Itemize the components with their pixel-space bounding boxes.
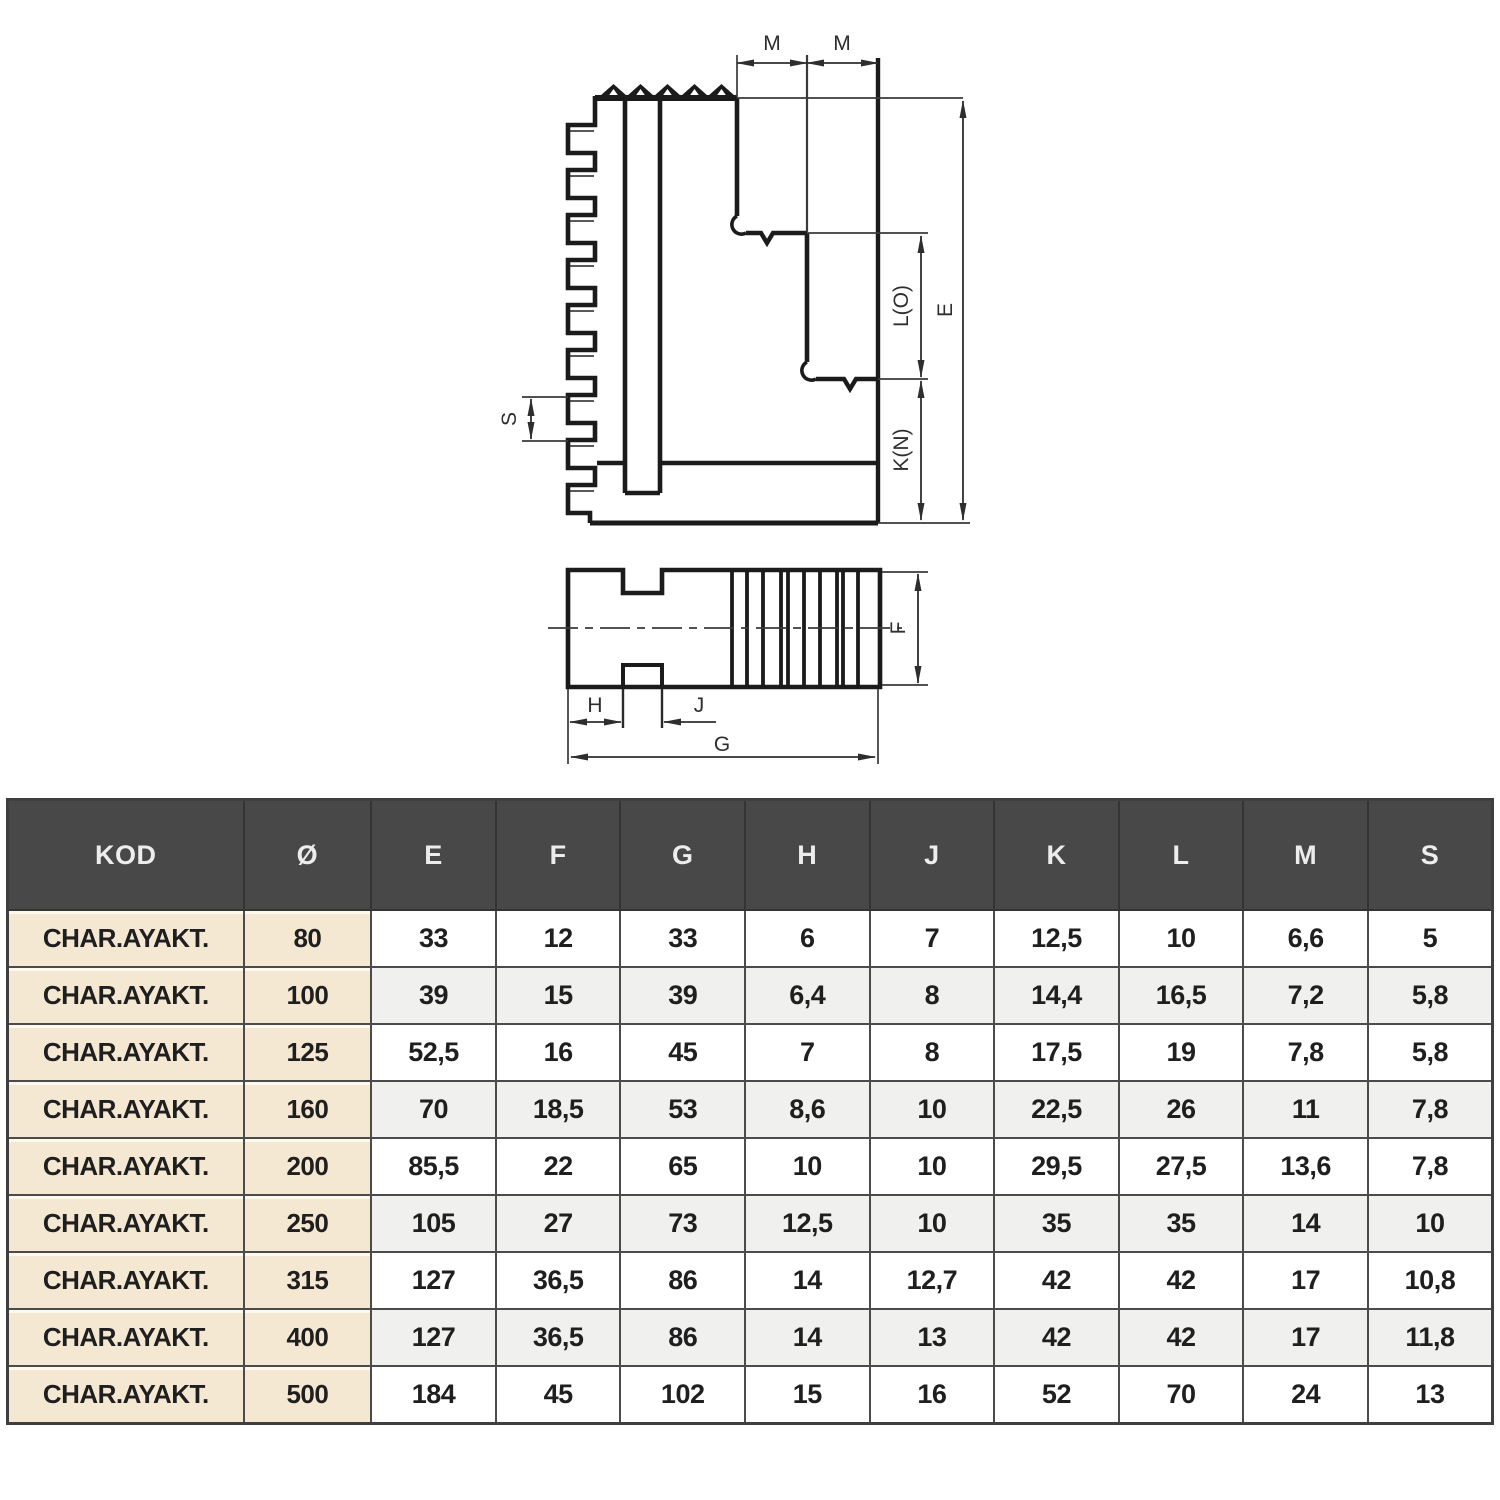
value-cell: 7,8 <box>1368 1081 1493 1138</box>
value-cell: 18,5 <box>496 1081 621 1138</box>
value-cell: 27,5 <box>1119 1138 1244 1195</box>
table-row: CHAR.AYAKT.1607018,5538,61022,526117,8 <box>8 1081 1493 1138</box>
value-cell: 10,8 <box>1368 1252 1493 1309</box>
value-cell: 10 <box>1119 910 1244 967</box>
value-cell: 13,6 <box>1243 1138 1368 1195</box>
kod-cell: CHAR.AYAKT. <box>8 1309 244 1366</box>
value-cell: 73 <box>620 1195 745 1252</box>
table-row: CHAR.AYAKT.40012736,586141342421711,8 <box>8 1309 1493 1366</box>
value-cell: 8 <box>870 1024 995 1081</box>
value-cell: 36,5 <box>496 1309 621 1366</box>
kod-cell: CHAR.AYAKT. <box>8 910 244 967</box>
header-row: KOD Ø E F G H J K L M S <box>8 800 1493 911</box>
diameter-cell: 160 <box>244 1081 372 1138</box>
value-cell: 127 <box>371 1309 496 1366</box>
value-cell: 15 <box>496 967 621 1024</box>
jaw-drawing-svg: M M E L(O) K(N) S H J G F <box>0 0 1500 795</box>
plan-slot-extensions <box>623 689 662 728</box>
value-cell: 35 <box>994 1195 1119 1252</box>
value-cell: 127 <box>371 1252 496 1309</box>
value-cell: 184 <box>371 1366 496 1424</box>
col-header-f: F <box>496 800 621 911</box>
value-cell: 7 <box>745 1024 870 1081</box>
value-cell: 16 <box>870 1366 995 1424</box>
value-cell: 11,8 <box>1368 1309 1493 1366</box>
value-cell: 39 <box>371 967 496 1024</box>
value-cell: 6,4 <box>745 967 870 1024</box>
value-cell: 22 <box>496 1138 621 1195</box>
value-cell: 105 <box>371 1195 496 1252</box>
value-cell: 53 <box>620 1081 745 1138</box>
col-header-m: M <box>1243 800 1368 911</box>
value-cell: 11 <box>1243 1081 1368 1138</box>
table-row: CHAR.AYAKT.803312336712,5106,65 <box>8 910 1493 967</box>
diameter-cell: 100 <box>244 967 372 1024</box>
value-cell: 26 <box>1119 1081 1244 1138</box>
value-cell: 86 <box>620 1252 745 1309</box>
value-cell: 10 <box>870 1081 995 1138</box>
value-cell: 33 <box>620 910 745 967</box>
col-header-s: S <box>1368 800 1493 911</box>
table-row: CHAR.AYAKT.20085,52265101029,527,513,67,… <box>8 1138 1493 1195</box>
kod-cell: CHAR.AYAKT. <box>8 1081 244 1138</box>
value-cell: 24 <box>1243 1366 1368 1424</box>
value-cell: 7 <box>870 910 995 967</box>
value-cell: 70 <box>371 1081 496 1138</box>
value-cell: 42 <box>994 1309 1119 1366</box>
col-header-kod: KOD <box>8 800 244 911</box>
value-cell: 17 <box>1243 1309 1368 1366</box>
guide-slot <box>625 98 660 493</box>
value-cell: 27 <box>496 1195 621 1252</box>
value-cell: 6,6 <box>1243 910 1368 967</box>
kod-cell: CHAR.AYAKT. <box>8 1024 244 1081</box>
value-cell: 15 <box>745 1366 870 1424</box>
label-lo: L(O) <box>890 285 913 327</box>
label-m-left: M <box>763 32 781 55</box>
value-cell: 14,4 <box>994 967 1119 1024</box>
kod-cell: CHAR.AYAKT. <box>8 967 244 1024</box>
diameter-cell: 200 <box>244 1138 372 1195</box>
value-cell: 13 <box>1368 1366 1493 1424</box>
value-cell: 7,2 <box>1243 967 1368 1024</box>
value-cell: 5,8 <box>1368 1024 1493 1081</box>
label-kn: K(N) <box>890 428 913 471</box>
kod-cell: CHAR.AYAKT. <box>8 1252 244 1309</box>
value-cell: 6 <box>745 910 870 967</box>
table-row: CHAR.AYAKT.31512736,5861412,742421710,8 <box>8 1252 1493 1309</box>
value-cell: 22,5 <box>994 1081 1119 1138</box>
label-g: G <box>714 733 730 756</box>
diameter-cell: 400 <box>244 1309 372 1366</box>
value-cell: 86 <box>620 1309 745 1366</box>
bore2-relief-hook <box>802 362 816 380</box>
plan-bottom-slot <box>623 665 662 687</box>
label-e: E <box>934 303 957 317</box>
value-cell: 8,6 <box>745 1081 870 1138</box>
value-cell: 10 <box>870 1195 995 1252</box>
value-cell: 65 <box>620 1138 745 1195</box>
value-cell: 14 <box>1243 1195 1368 1252</box>
table-row: CHAR.AYAKT.12552,516457817,5197,85,8 <box>8 1024 1493 1081</box>
value-cell: 12 <box>496 910 621 967</box>
table-row: CHAR.AYAKT.1003915396,4814,416,57,25,8 <box>8 967 1493 1024</box>
table-header: KOD Ø E F G H J K L M S <box>8 800 1493 911</box>
value-cell: 29,5 <box>994 1138 1119 1195</box>
diameter-cell: 125 <box>244 1024 372 1081</box>
col-header-diameter: Ø <box>244 800 372 911</box>
value-cell: 14 <box>745 1309 870 1366</box>
drawing-side-view: M M E L(O) K(N) S <box>498 32 970 523</box>
value-cell: 33 <box>371 910 496 967</box>
table-row: CHAR.AYAKT.250105277312,51035351410 <box>8 1195 1493 1252</box>
value-cell: 12,7 <box>870 1252 995 1309</box>
top-serration-notches <box>609 89 727 96</box>
value-cell: 16,5 <box>1119 967 1244 1024</box>
kod-cell: CHAR.AYAKT. <box>8 1138 244 1195</box>
label-s: S <box>498 412 521 426</box>
value-cell: 17 <box>1243 1252 1368 1309</box>
col-header-g: G <box>620 800 745 911</box>
value-cell: 5,8 <box>1368 967 1493 1024</box>
value-cell: 10 <box>870 1138 995 1195</box>
value-cell: 7,8 <box>1368 1138 1493 1195</box>
value-cell: 13 <box>870 1309 995 1366</box>
value-cell: 42 <box>1119 1309 1244 1366</box>
value-cell: 35 <box>1119 1195 1244 1252</box>
bore1-step-surface <box>746 233 807 243</box>
value-cell: 12,5 <box>745 1195 870 1252</box>
value-cell: 16 <box>496 1024 621 1081</box>
bore2-step-surface <box>816 379 878 389</box>
technical-drawing: M M E L(O) K(N) S H J G F <box>0 0 1500 795</box>
value-cell: 42 <box>1119 1252 1244 1309</box>
spec-table: KOD Ø E F G H J K L M S CHAR.AYAKT.80331… <box>6 798 1494 1425</box>
value-cell: 7,8 <box>1243 1024 1368 1081</box>
tooth-face-lines <box>569 131 594 491</box>
value-cell: 10 <box>745 1138 870 1195</box>
diameter-cell: 80 <box>244 910 372 967</box>
value-cell: 19 <box>1119 1024 1244 1081</box>
value-cell: 52 <box>994 1366 1119 1424</box>
table-body: CHAR.AYAKT.803312336712,5106,65CHAR.AYAK… <box>8 910 1493 1424</box>
bore1-relief-hook <box>732 216 746 234</box>
value-cell: 102 <box>620 1366 745 1424</box>
value-cell: 10 <box>1368 1195 1493 1252</box>
value-cell: 5 <box>1368 910 1493 967</box>
col-header-k: K <box>994 800 1119 911</box>
value-cell: 52,5 <box>371 1024 496 1081</box>
kod-cell: CHAR.AYAKT. <box>8 1195 244 1252</box>
col-header-l: L <box>1119 800 1244 911</box>
kod-cell: CHAR.AYAKT. <box>8 1366 244 1424</box>
left-serrated-profile <box>568 96 595 523</box>
value-cell: 14 <box>745 1252 870 1309</box>
table-row: CHAR.AYAKT.50018445102151652702413 <box>8 1366 1493 1424</box>
value-cell: 45 <box>496 1366 621 1424</box>
col-header-h: H <box>745 800 870 911</box>
value-cell: 39 <box>620 967 745 1024</box>
label-j: J <box>694 694 705 717</box>
col-header-j: J <box>870 800 995 911</box>
diameter-cell: 315 <box>244 1252 372 1309</box>
label-f: F <box>887 622 910 635</box>
value-cell: 45 <box>620 1024 745 1081</box>
label-m-right: M <box>833 32 851 55</box>
diameter-cell: 250 <box>244 1195 372 1252</box>
value-cell: 8 <box>870 967 995 1024</box>
col-header-e: E <box>371 800 496 911</box>
value-cell: 85,5 <box>371 1138 496 1195</box>
value-cell: 17,5 <box>994 1024 1119 1081</box>
drawing-plan-view: H J G F <box>548 570 928 764</box>
label-h: H <box>587 694 602 717</box>
value-cell: 36,5 <box>496 1252 621 1309</box>
value-cell: 42 <box>994 1252 1119 1309</box>
value-cell: 12,5 <box>994 910 1119 967</box>
value-cell: 70 <box>1119 1366 1244 1424</box>
diameter-cell: 500 <box>244 1366 372 1424</box>
